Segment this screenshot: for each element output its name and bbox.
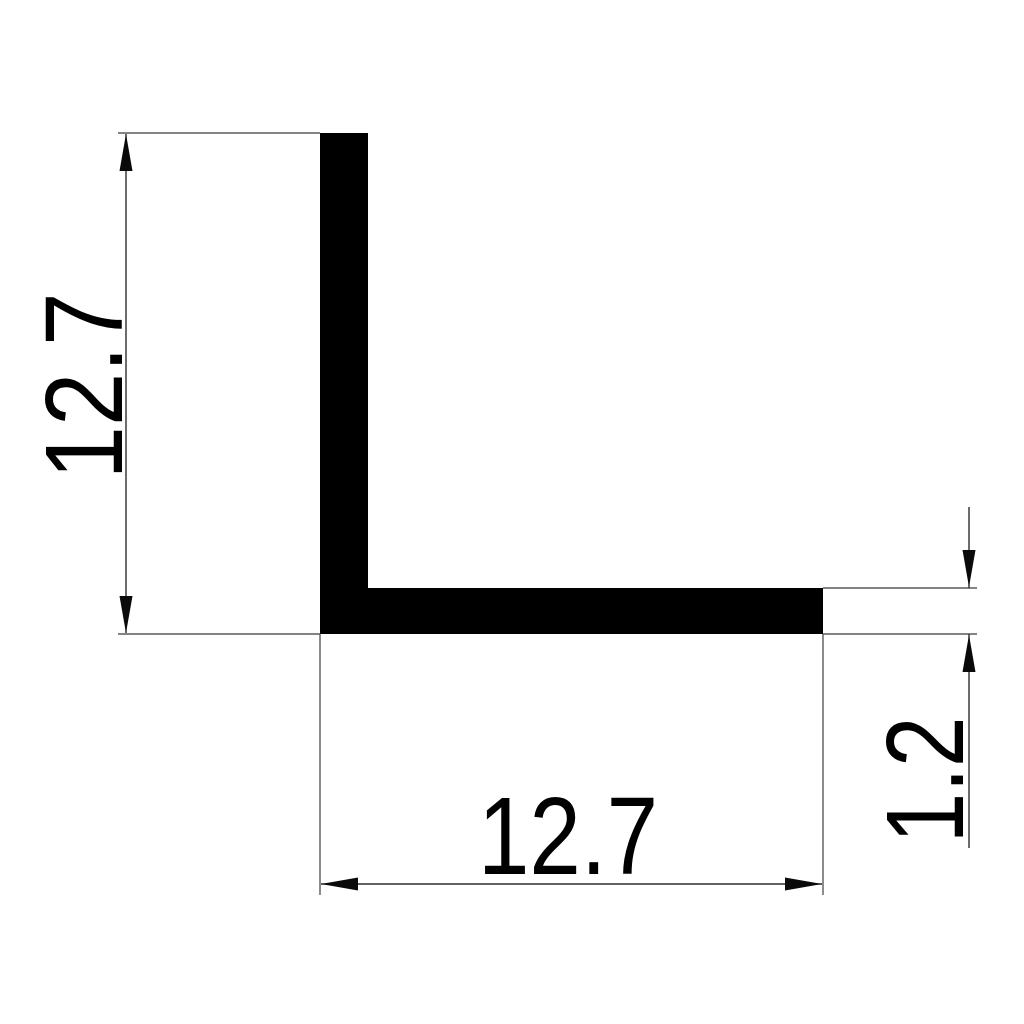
width-arrowhead-right bbox=[785, 878, 822, 891]
thickness-arrowhead-down bbox=[963, 550, 976, 587]
thickness-dimension-label: 1.2 bbox=[864, 717, 987, 844]
drawing-canvas: 12.7 12.7 1.2 bbox=[0, 0, 1024, 1024]
height-arrowhead-up bbox=[120, 134, 133, 171]
height-arrowhead-down bbox=[120, 596, 133, 633]
width-dimension-label: 12.7 bbox=[478, 775, 658, 898]
height-dimension-label: 12.7 bbox=[23, 293, 146, 480]
width-arrowhead-left bbox=[321, 878, 358, 891]
l-profile-shape bbox=[320, 133, 823, 634]
thickness-arrowhead-up bbox=[963, 635, 976, 672]
technical-drawing: 12.7 12.7 1.2 bbox=[0, 0, 1024, 1024]
